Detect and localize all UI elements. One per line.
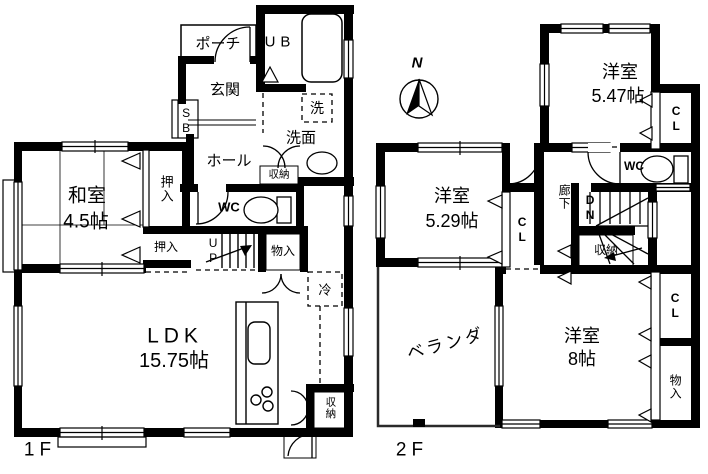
label-hall: ホール [206,153,251,168]
label-storage-2f: 収納 [594,244,618,256]
label-washitsu-size: 4.5帖 [63,212,108,231]
label-room547-size: 5.47帖 [591,87,644,105]
doors-2f [508,152,620,184]
label-cl-8: CL [669,291,681,321]
label-dn: DN [584,193,596,223]
label-room8-size: 8帖 [568,350,596,368]
label-room529: 洋室 [434,187,470,205]
label-wc-2f: WC [624,160,644,172]
label-washitsu: 和室 [68,186,106,205]
label-oshiire-upper: 押入 [159,175,172,203]
label-ldk: LDK [147,325,203,346]
label-monoiri-2f: 物入 [669,374,681,400]
label-north: N [412,55,423,70]
label-porch: ポーチ [195,36,240,51]
label-genkan: 玄関 [210,82,240,97]
label-wc-1f: WC [218,200,240,213]
label-ldk-size: 15.75帖 [139,351,209,371]
label-room8: 洋室 [564,327,600,345]
label-ub: UB [265,34,296,49]
toilet-1f [244,197,291,223]
label-sb: SB [180,106,192,136]
kitchen-counter [236,302,278,424]
label-floor1: 1F [24,440,56,459]
label-fridge: 冷 [318,283,331,296]
bathtub [302,14,342,82]
label-senmen: 洗面 [286,130,316,145]
label-cl-529: CL [516,215,528,245]
sink [307,152,337,174]
label-room529-size: 5.29帖 [425,212,478,230]
label-washer: 洗 [310,101,324,115]
label-monoiri-1f: 物入 [271,245,295,257]
compass-graphic [400,79,438,118]
furniture-1f [236,14,342,424]
label-cl-547: CL [670,104,682,134]
label-hall-storage: 収納 [269,170,290,181]
label-oshiire-lower: 押入 [154,241,178,253]
label-rouka: 廊下 [558,184,570,210]
toilet-2f [641,156,688,183]
label-floor2: 2F [396,440,428,459]
floor-plan: ポーチ UB 玄関 SB 洗 洗面 ホール 収納 WC 和室 4.5帖 押入 押… [0,0,708,474]
tatami-lines [22,151,143,264]
label-room547: 洋室 [602,63,638,81]
label-up: UP [207,236,219,266]
label-ldk-storage: 収納 [325,397,336,420]
